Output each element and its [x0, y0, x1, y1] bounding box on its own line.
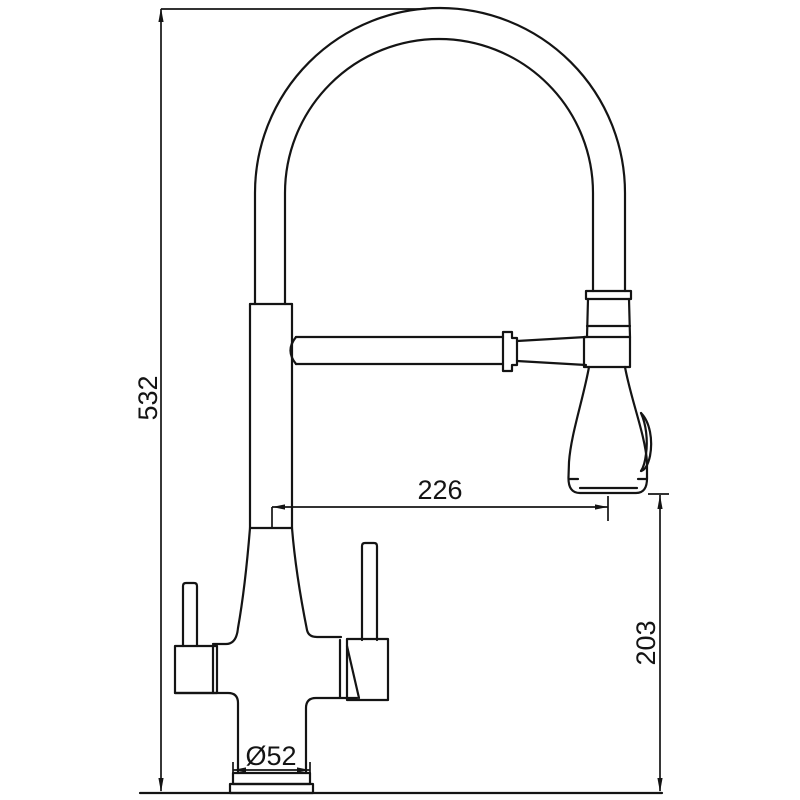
dim-base-arrow-right — [297, 767, 310, 772]
dim-spray-label: 203 — [631, 620, 661, 665]
spray-head-body-left — [569, 367, 590, 477]
dimension-spray-height: 203 — [631, 494, 669, 792]
body-flare-left — [213, 528, 250, 644]
arm-clamp — [503, 332, 517, 371]
body-shelf-left — [175, 693, 238, 773]
right-handle-lever — [362, 543, 377, 640]
body-shelf-right — [306, 698, 357, 773]
dim-spray-arrow-down — [657, 778, 662, 792]
dim-height-label: 532 — [133, 375, 163, 420]
dim-reach-label: 226 — [417, 475, 462, 505]
arm-cone-bottom — [517, 361, 586, 365]
spray-head-band — [584, 337, 630, 367]
body-flare-right — [292, 528, 341, 637]
spray-head-upper-left — [587, 299, 588, 337]
spray-head-upper-right — [629, 299, 630, 337]
dim-reach-arrow-left — [272, 504, 285, 509]
dim-height-arrow-up — [158, 8, 163, 22]
dim-base-label: Ø52 — [245, 741, 296, 771]
dimension-spout-reach: 226 — [272, 475, 608, 529]
spray-face-outline — [568, 477, 647, 493]
dim-height-arrow-down — [158, 778, 163, 792]
hose-inner-arc — [285, 39, 593, 304]
hose-outer-arc — [255, 8, 625, 304]
dimension-overall-height: 532 — [133, 8, 426, 792]
base-plate-lower — [230, 784, 313, 793]
faucet-technical-drawing: 532 226 203 Ø52 — [0, 0, 800, 800]
faucet-outline — [140, 8, 662, 793]
left-handle-base — [175, 646, 217, 693]
dim-base-arrow-left — [233, 767, 246, 772]
left-handle-lever — [183, 583, 197, 646]
right-handle-diagonal — [347, 646, 359, 698]
dim-spray-arrow-up — [657, 495, 662, 509]
dim-reach-arrow-right — [595, 504, 608, 509]
spray-head-collar — [586, 291, 631, 299]
technical-drawing-page: 532 226 203 Ø52 — [0, 0, 800, 800]
arm-cone-top — [517, 337, 586, 341]
dimension-base-diameter: Ø52 — [233, 741, 310, 776]
base-plate-upper — [233, 773, 310, 784]
